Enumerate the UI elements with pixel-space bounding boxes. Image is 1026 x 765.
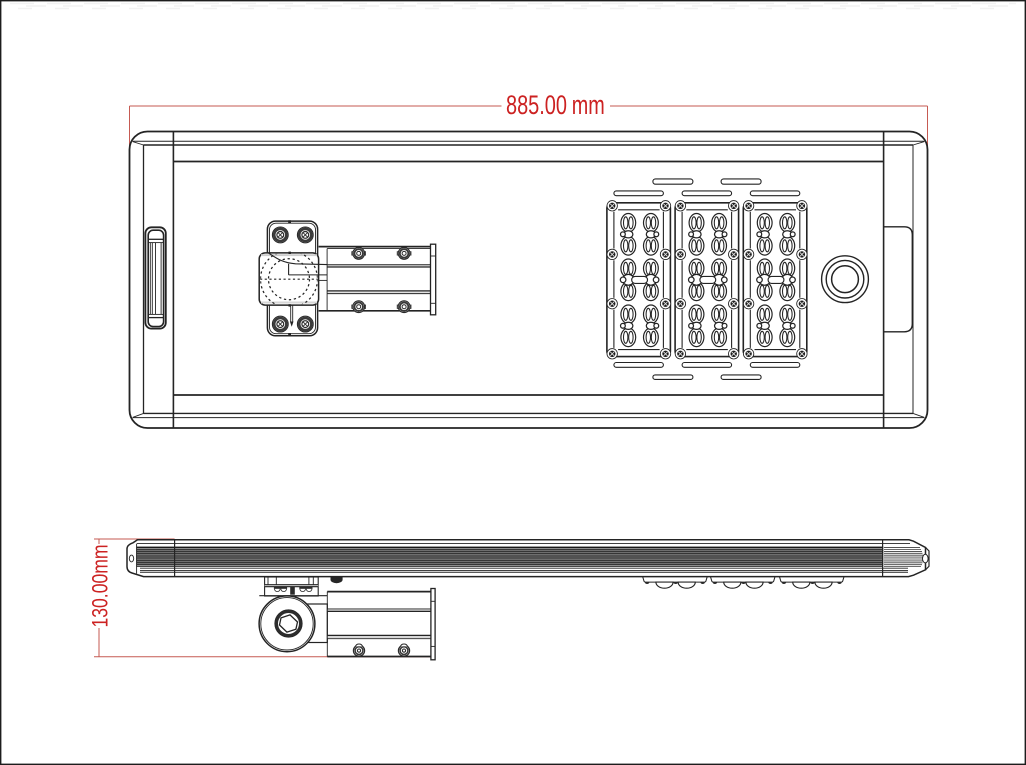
svg-text:885.00: 885.00 <box>506 90 567 120</box>
svg-text:mm: mm <box>572 90 605 120</box>
svg-text:130.00mm: 130.00mm <box>88 545 113 628</box>
